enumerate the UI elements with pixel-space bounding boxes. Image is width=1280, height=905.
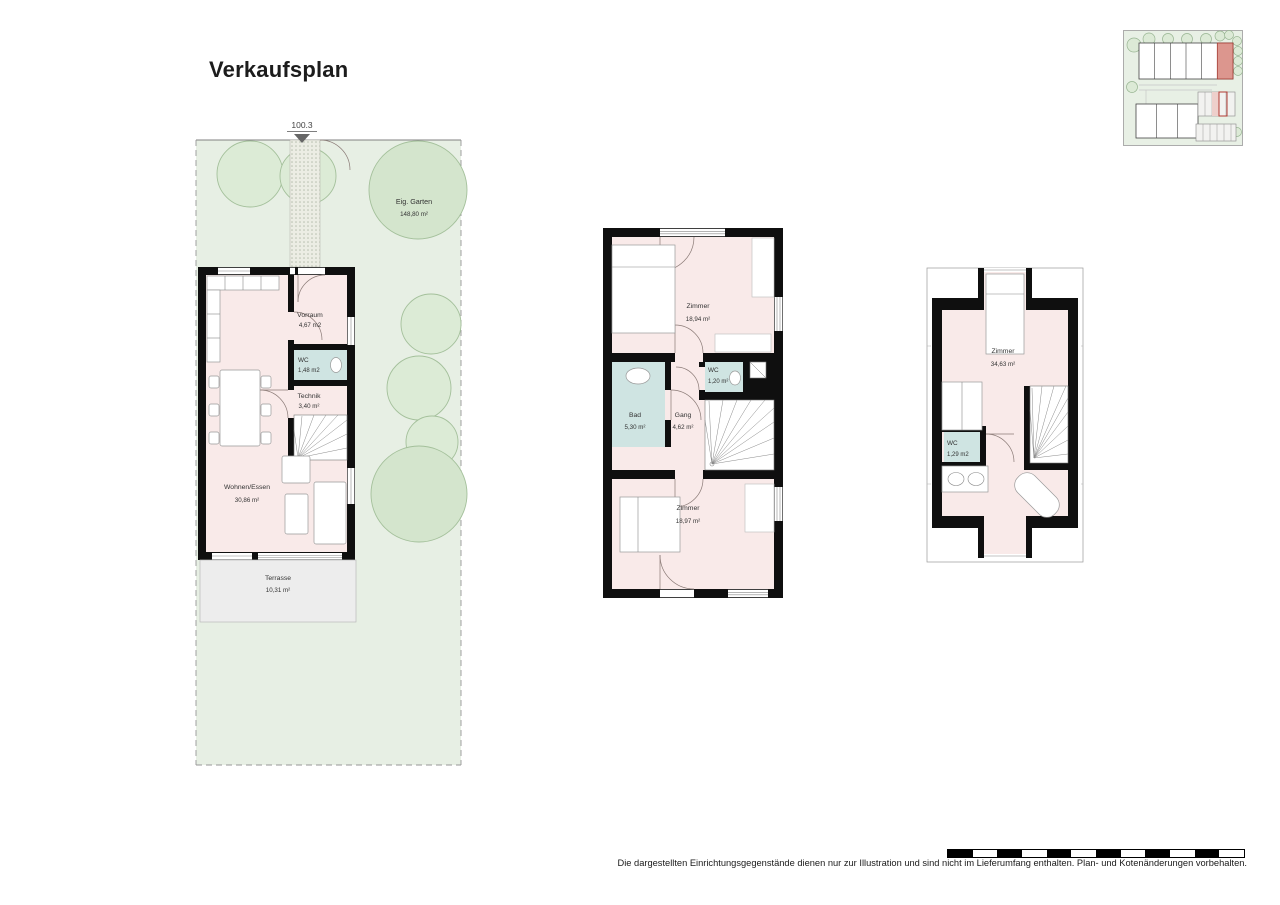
room-label: Zimmer [991,348,1015,355]
parking-upper [1198,92,1235,116]
attic-floor-plan: Zimmer 34,63 m² WC 1,29 m2 [920,258,1090,568]
house-row-bottom [1136,104,1198,138]
room-label: Technik [297,393,321,400]
room-label: Zimmer [676,505,700,512]
chimney [750,362,766,378]
room-label: Bad [629,412,641,419]
toilet [331,358,342,373]
page-title: Verkaufsplan [209,57,348,83]
parking-lower [1196,124,1236,141]
disclaimer-text: Die dargestellten Einrichtungsgegenständ… [560,858,1247,868]
room-area: 5,30 m² [625,424,646,431]
room-area: 1,29 m2 [947,452,969,458]
room-area: 1,20 m² [708,379,728,385]
bed-zimmer1 [612,245,675,333]
toilet [730,371,741,385]
vanity-double-sink [942,466,988,492]
dimension-label: 100.3 [291,120,313,130]
garden-path [290,140,320,267]
room-label: Wohnen/Essen [224,484,270,491]
dresser-zimmer1 [715,334,771,352]
site-key-plan [1122,28,1248,150]
room-area: 18,97 m² [676,518,700,525]
stairs [705,400,774,470]
highlighted-parking-fill [1212,92,1219,116]
scale-bar [947,849,1245,858]
sink [626,368,650,384]
wardrobe [942,382,982,430]
room-area: 30,86 m² [235,497,259,504]
dormer-bottom [984,516,1026,554]
room-label: Vorraum [297,312,323,319]
garden-area-label: 148,80 m² [400,211,428,218]
stairs [294,415,347,460]
room-area: 18,94 m² [686,316,710,323]
bed [986,274,1024,354]
room-label: WC [708,367,719,374]
room-area: 4,67 m2 [299,322,322,329]
room-area: 10,31 m² [266,587,290,594]
stairs [1030,386,1068,463]
room-label: WC [947,440,958,447]
room-label: WC [298,357,309,364]
verkaufsplan-page: Verkaufsplan 100 [0,0,1280,905]
room-area: 4,62 m² [673,424,694,431]
room-label: Gang [675,412,692,419]
room-area: 1,48 m2 [298,368,320,374]
dining-table [209,370,271,446]
bed-zimmer2 [620,497,680,552]
wardrobe-zimmer1 [752,238,774,297]
room-area: 34,63 m² [991,361,1015,368]
wardrobe-zimmer2 [745,484,774,532]
room-label: Terrasse [265,575,291,582]
highlighted-unit [1217,43,1233,79]
house-row-top [1139,43,1233,79]
upper-floor-plan: Zimmer 18,94 m² WC 1,20 m² Bad 5,30 m² G… [595,222,795,604]
garden-label: Eig. Garten [396,197,432,206]
ground-floor-plan: 100.3 Eig. Garten 148,80 m² [190,112,470,770]
room-area: 3,40 m² [299,403,320,410]
room-label: Zimmer [686,303,710,310]
